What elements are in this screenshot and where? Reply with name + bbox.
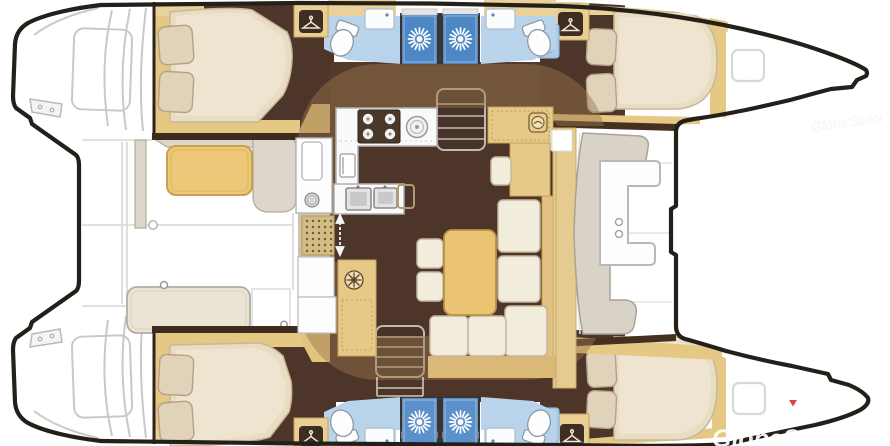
svg-text:GlobeSailor: GlobeSailor <box>712 425 854 446</box>
